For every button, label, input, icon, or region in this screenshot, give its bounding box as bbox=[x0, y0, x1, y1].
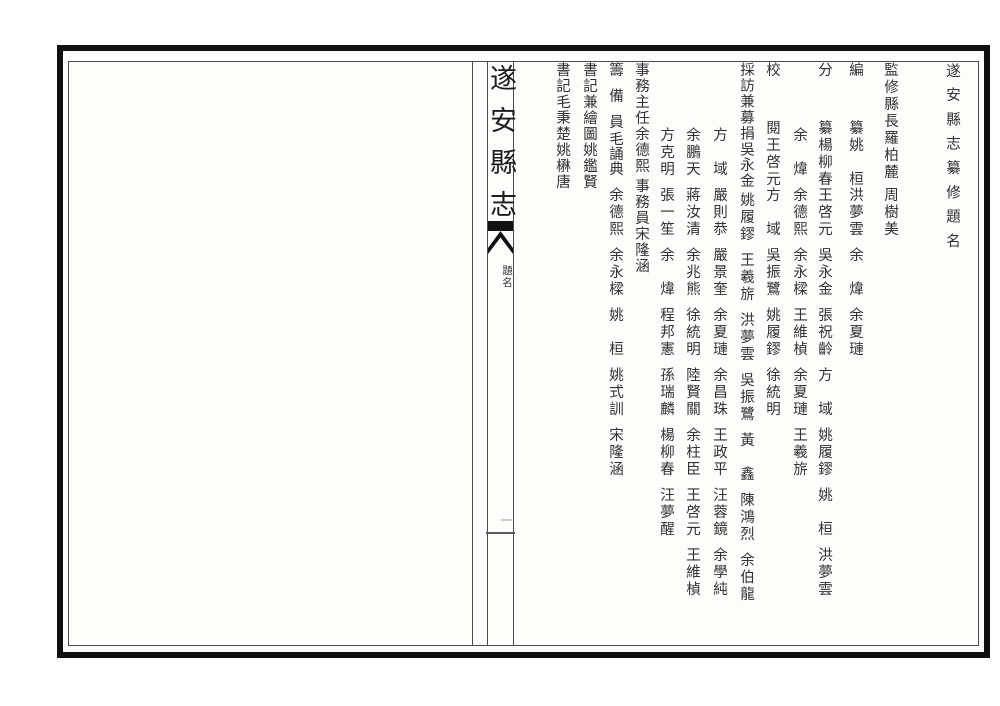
roster-member-name: 宋隆涵 bbox=[607, 427, 623, 478]
roster-member-name: 洪夢雲 bbox=[847, 187, 863, 238]
spine-book-title: 遂安縣志 bbox=[487, 64, 513, 232]
roster-role-label: 籌備員 bbox=[607, 62, 623, 140]
roster-member-name: 徐統明 bbox=[764, 367, 780, 418]
roster-member-name: 方克明 bbox=[658, 127, 674, 178]
roster-member-name: 楊柳春 bbox=[658, 427, 674, 478]
roster-member-name: 余永樑 bbox=[607, 247, 623, 298]
roster-role-label: 纂 bbox=[847, 120, 863, 137]
roster-role-and-member: 書記毛秉楚姚楙唐 bbox=[554, 62, 570, 190]
roster-member-name: 楊柳春 bbox=[816, 137, 832, 188]
roster-member-name: 余鵬天 bbox=[684, 127, 700, 178]
roster-member-name: 余煒 bbox=[658, 247, 674, 315]
roster-member-name: 徐統明 bbox=[684, 307, 700, 358]
roster-role-label: 校 bbox=[764, 62, 780, 79]
roster-member-name: 余永樑 bbox=[791, 247, 807, 298]
roster-member-name: 毛誦典 bbox=[607, 131, 623, 176]
roster-role-and-member: 書記兼繪圖姚鑑賢 bbox=[581, 62, 597, 190]
roster-member-name: 王啓元 bbox=[764, 137, 780, 188]
roster-member-name: 姚履鏐 bbox=[764, 307, 780, 358]
fishtail-mark-icon bbox=[488, 221, 513, 255]
roster-role-and-member: 採訪兼募捐吳永金 bbox=[738, 62, 754, 189]
roster-member-name: 張祝齡 bbox=[816, 307, 832, 358]
roster-member-name: 王政平 bbox=[711, 427, 727, 478]
roster-member-name: 余煒 bbox=[791, 127, 807, 195]
roster-member-name: 洪夢雲 bbox=[738, 312, 754, 363]
roster-member-name: 余夏璉 bbox=[847, 307, 863, 358]
blank-left-page bbox=[69, 62, 471, 645]
roster-member-name: 嚴則恭 bbox=[711, 187, 727, 238]
spine-pagenum-divider bbox=[486, 532, 515, 534]
roster-member-name: 余煒 bbox=[847, 247, 863, 315]
roster-title: 遂安縣志纂修題名 bbox=[944, 63, 960, 257]
roster-member-name: 方域 bbox=[764, 187, 780, 255]
roster-member-name: 王維楨 bbox=[684, 547, 700, 598]
roster-member-name: 方域 bbox=[816, 367, 832, 435]
roster-member-name: 陸賢關 bbox=[684, 367, 700, 418]
roster-member-name: 余昌珠 bbox=[711, 367, 727, 418]
roster-member-name: 汪蓉鏡 bbox=[711, 487, 727, 538]
roster-role-label: 分 bbox=[816, 62, 832, 79]
roster-member-name: 洪夢雲 bbox=[816, 547, 832, 598]
roster-member-name: 吳振鷺 bbox=[764, 247, 780, 298]
roster-member-name: 余學純 bbox=[711, 547, 727, 598]
roster-role-label: 編 bbox=[847, 62, 863, 79]
roster-member-name: 吳永金 bbox=[816, 247, 832, 298]
roster-member-name: 陳鴻烈 bbox=[738, 492, 754, 543]
roster-member-name: 周樹美 bbox=[882, 187, 898, 238]
roster-member-name: 姚式訓 bbox=[607, 367, 623, 418]
roster-role-and-member: 監修縣長羅柏麓 bbox=[882, 62, 898, 181]
roster-member-name: 余伯龍 bbox=[738, 552, 754, 603]
roster-member-name: 姚履鏐 bbox=[738, 192, 754, 243]
roster-role-label: 纂 bbox=[816, 120, 832, 137]
roster-member-name: 吳振鷺 bbox=[738, 372, 754, 423]
spine-page-number: 一 bbox=[499, 514, 513, 526]
roster-role-and-member: 事務員宋隆涵 bbox=[633, 178, 649, 274]
roster-member-name: 余柱臣 bbox=[684, 427, 700, 478]
roster-member-name: 余德熙 bbox=[791, 187, 807, 238]
roster-member-name: 余夏璉 bbox=[791, 367, 807, 418]
roster-member-name: 姚桓 bbox=[816, 487, 832, 555]
roster-member-name: 黃鑫 bbox=[738, 432, 754, 500]
roster-member-name: 汪夢醒 bbox=[658, 487, 674, 538]
roster-member-name: 孫瑞麟 bbox=[658, 367, 674, 418]
book-scan-page: 遂安縣志 題名 一 遂安縣志纂修題名監修縣長羅柏麓周樹美編纂姚桓洪夢雲余煒余夏璉… bbox=[0, 0, 1000, 706]
roster-member-name: 方域 bbox=[711, 127, 727, 195]
roster-member-name: 余兆熊 bbox=[684, 247, 700, 298]
spine-section-label: 題名 bbox=[501, 265, 513, 289]
roster-role-label: 閱 bbox=[764, 120, 780, 137]
roster-member-name: 張一笙 bbox=[658, 187, 674, 238]
roster-member-name: 余夏璉 bbox=[711, 307, 727, 358]
roster-member-name: 程邦憲 bbox=[658, 307, 674, 358]
roster-member-name: 王維楨 bbox=[791, 307, 807, 358]
roster-member-name: 王羲旂 bbox=[738, 252, 754, 303]
roster-member-name: 余德熙 bbox=[607, 187, 623, 238]
roster-member-name: 王啓元 bbox=[684, 487, 700, 538]
roster-member-name: 王啓元 bbox=[816, 187, 832, 238]
roster-member-name: 姚桓 bbox=[607, 307, 623, 375]
roster-member-name: 蔣汝清 bbox=[684, 187, 700, 238]
left-page-edge-rule bbox=[472, 61, 473, 646]
roster-member-name: 王羲旂 bbox=[791, 427, 807, 478]
roster-member-name: 姚履鏐 bbox=[816, 427, 832, 478]
roster-role-and-member: 事務主任余德熙 bbox=[633, 62, 649, 174]
roster-member-name: 嚴景奎 bbox=[711, 247, 727, 298]
